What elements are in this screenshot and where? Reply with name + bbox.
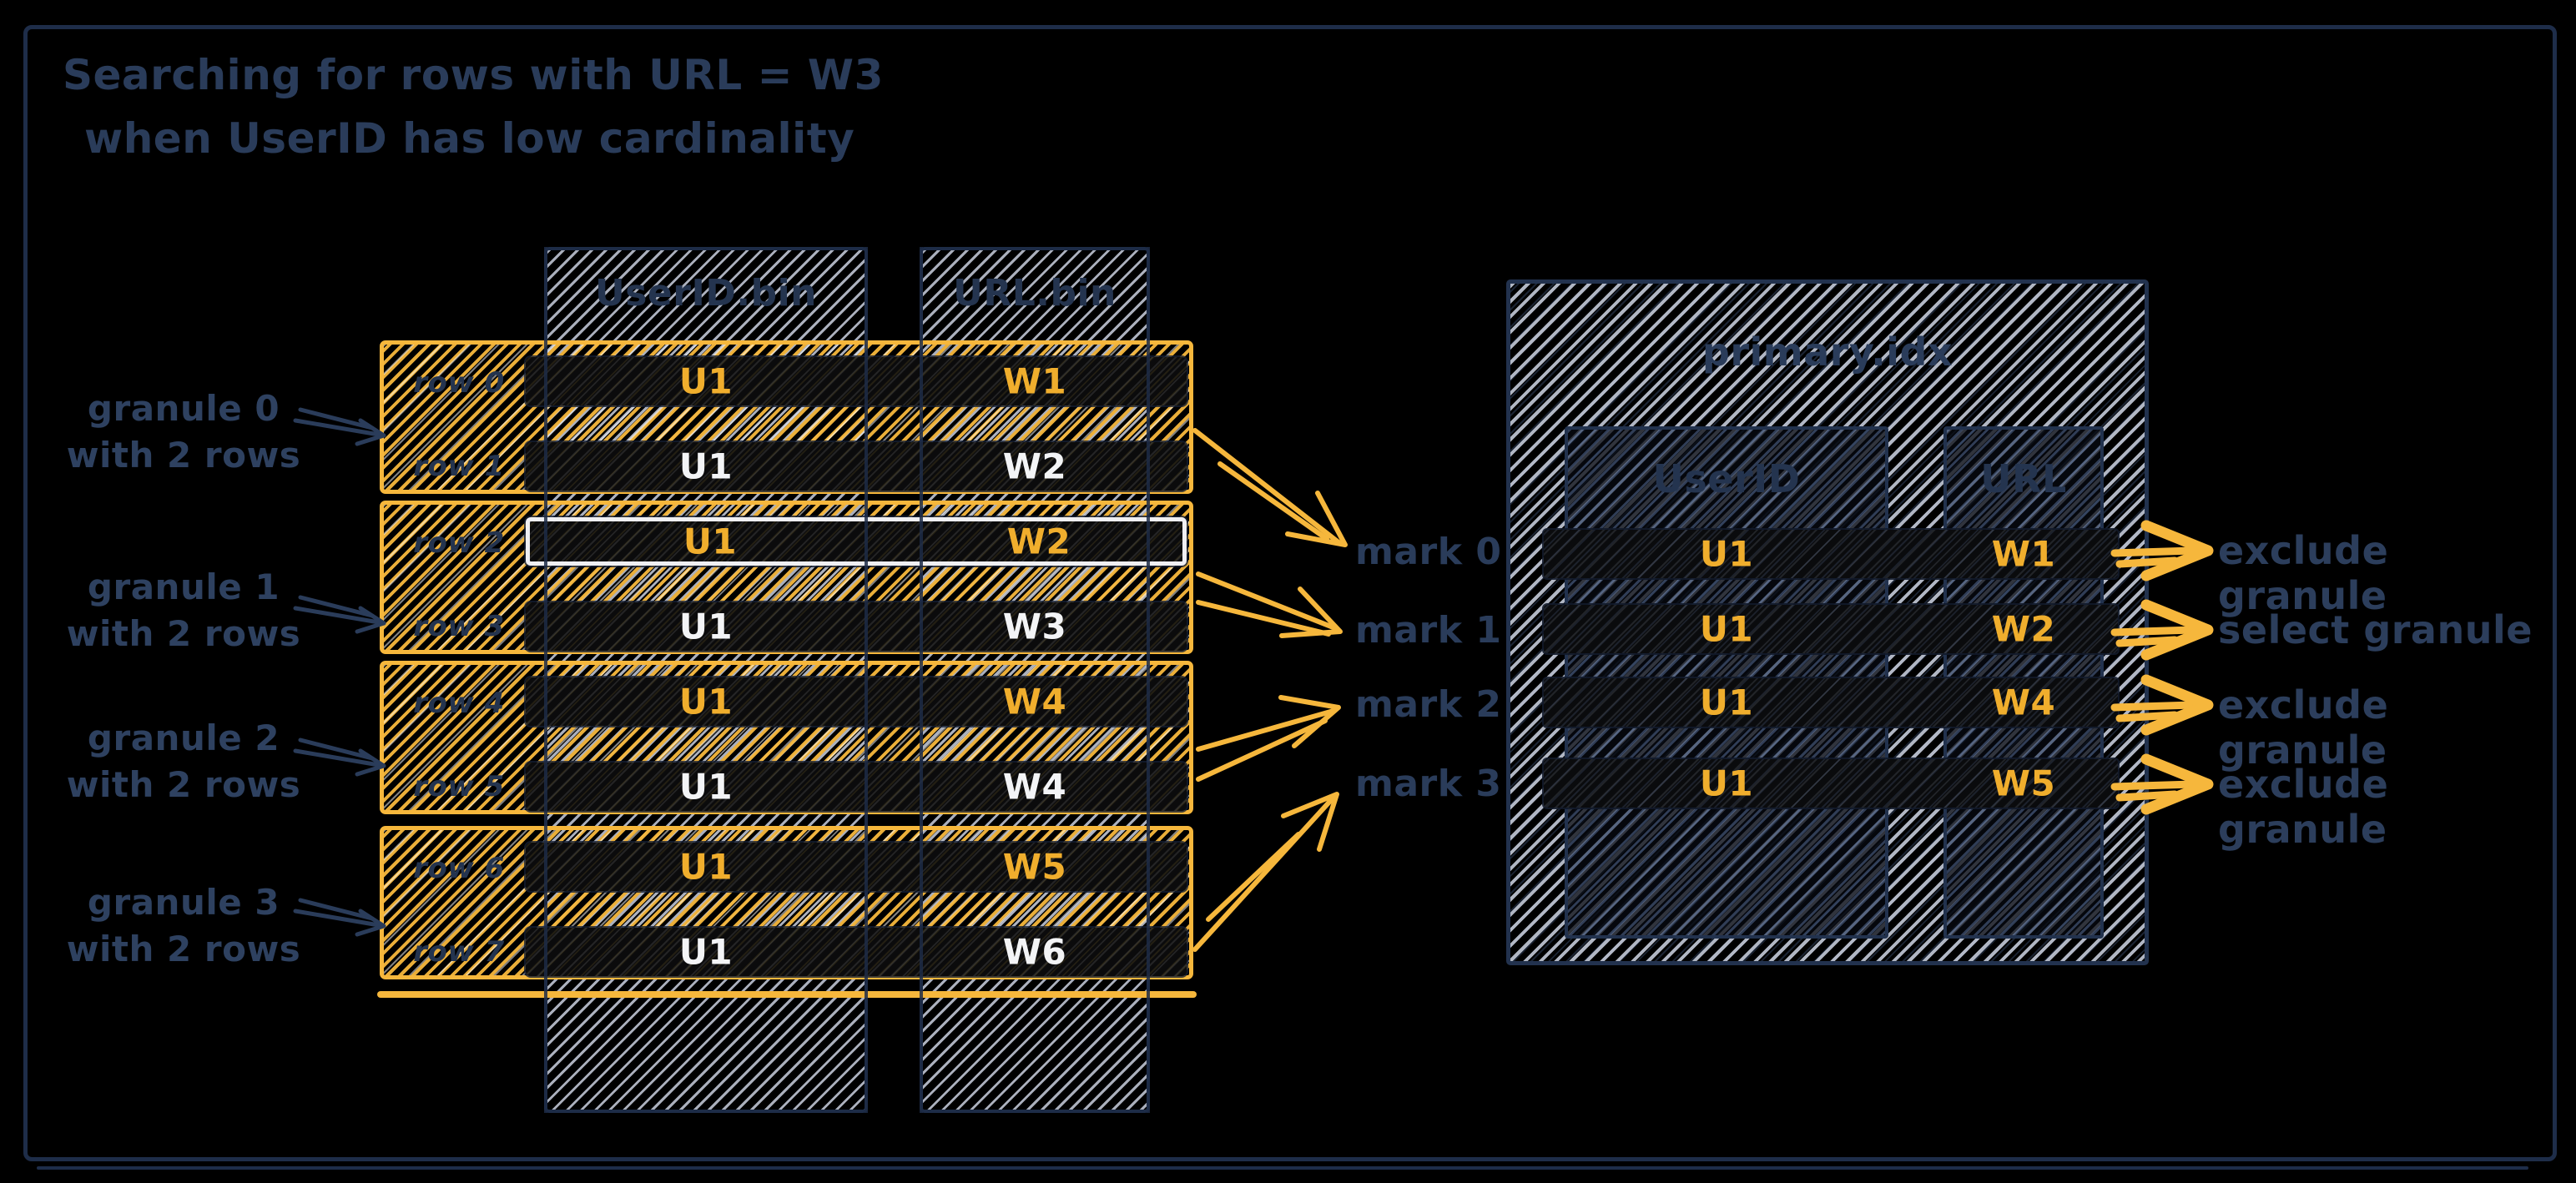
annotation-line: granule 2 xyxy=(42,715,325,762)
cell-url: W3 xyxy=(920,607,1150,647)
annotation-line: with 2 rows xyxy=(42,611,325,657)
cell-url: W1 xyxy=(920,361,1150,402)
table-row-0: U1 W1 xyxy=(526,357,1187,405)
userid-strip-left-border xyxy=(544,247,547,1113)
annotation-line: with 2 rows xyxy=(42,432,325,479)
cell-url: W2 xyxy=(1943,609,2104,650)
primary-idx-title: primary.idx xyxy=(1510,330,2145,375)
userid-bin-header: UserID.bin xyxy=(547,272,865,315)
cell-userid: U1 xyxy=(544,682,868,722)
title-line-2: when UserID has low cardinality xyxy=(63,107,884,170)
cell-userid: U1 xyxy=(544,446,868,487)
outcome-label-3: exclude granule xyxy=(2218,762,2568,852)
cell-userid: U1 xyxy=(1565,609,1888,650)
granule-1-annotation: granule 1 with 2 rows xyxy=(42,564,325,657)
table-row-2-highlighted: U1 W2 xyxy=(526,517,1187,566)
annotation-line: with 2 rows xyxy=(42,926,325,973)
row-label-7: row 7 xyxy=(396,935,522,969)
cell-url: W2 xyxy=(924,521,1154,562)
outcome-label-0: exclude granule xyxy=(2218,528,2568,618)
idx-url-header: URL xyxy=(1947,456,2100,501)
cell-url: W1 xyxy=(1943,534,2104,575)
mark-label-1: mark 1 xyxy=(1355,609,1539,652)
idx-userid-header: UserID xyxy=(1568,456,1885,501)
outcome-label-1: select granule xyxy=(2218,607,2568,652)
idx-row-0: U1 W1 xyxy=(1544,530,2118,578)
cell-userid: U1 xyxy=(1565,534,1888,575)
table-row-3: U1 W3 xyxy=(526,602,1187,651)
idx-row-2: U1 W4 xyxy=(1544,678,2118,727)
primary-idx-table: primary.idx UserID URL U1 W1 U1 W2 U1 W4… xyxy=(1506,279,2149,965)
cell-url: W4 xyxy=(1943,682,2104,723)
row-label-2: row 2 xyxy=(396,526,522,560)
table-row-7: U1 W6 xyxy=(526,928,1187,976)
cell-url: W2 xyxy=(920,446,1150,487)
outcome-label-2: exclude granule xyxy=(2218,682,2568,773)
row-label-3: row 3 xyxy=(396,610,522,643)
cell-url: W4 xyxy=(920,767,1150,808)
outer-frame-bottom-line xyxy=(37,1166,2528,1170)
annotation-line: granule 1 xyxy=(42,564,325,611)
cell-url: W4 xyxy=(920,682,1150,722)
row-label-5: row 5 xyxy=(396,770,522,803)
cell-userid: U1 xyxy=(544,361,868,402)
cell-userid: U1 xyxy=(544,847,868,888)
granule-0-annotation: granule 0 with 2 rows xyxy=(42,385,325,479)
table-row-1: U1 W2 xyxy=(526,442,1187,491)
row-label-4: row 4 xyxy=(396,687,522,720)
cell-userid: U1 xyxy=(544,767,868,808)
cell-userid: U1 xyxy=(1565,763,1888,804)
mark-label-3: mark 3 xyxy=(1355,763,1539,805)
idx-row-1: U1 W2 xyxy=(1544,605,2118,653)
mark-label-0: mark 0 xyxy=(1355,531,1539,573)
userid-strip-right-border xyxy=(865,247,868,1113)
granule-3-annotation: granule 3 with 2 rows xyxy=(42,879,325,973)
mark-label-2: mark 2 xyxy=(1355,683,1539,726)
table-row-6: U1 W5 xyxy=(526,843,1187,891)
cell-url: W5 xyxy=(1943,763,2104,804)
url-strip-right-border xyxy=(1147,247,1150,1113)
url-strip-left-border xyxy=(920,247,923,1113)
cell-userid: U1 xyxy=(1565,682,1888,723)
table-row-4: U1 W4 xyxy=(526,677,1187,726)
annotation-line: with 2 rows xyxy=(42,762,325,808)
diagram-canvas: Searching for rows with URL = W3 when Us… xyxy=(0,0,2576,1183)
title-line-1: Searching for rows with URL = W3 xyxy=(63,43,884,107)
idx-row-3: U1 W5 xyxy=(1544,759,2118,808)
url-bin-header: URL.bin xyxy=(923,272,1147,315)
row-label-6: row 6 xyxy=(396,852,522,885)
granule-2-annotation: granule 2 with 2 rows xyxy=(42,715,325,808)
cell-userid: U1 xyxy=(544,932,868,973)
annotation-line: granule 0 xyxy=(42,385,325,432)
cell-url: W6 xyxy=(920,932,1150,973)
cell-userid: U1 xyxy=(548,521,872,562)
row-label-1: row 1 xyxy=(396,450,522,483)
cell-url: W5 xyxy=(920,847,1150,888)
annotation-line: granule 3 xyxy=(42,879,325,926)
row-label-0: row 0 xyxy=(396,366,522,400)
granule-3-bottom-sketch-line xyxy=(377,991,1197,998)
diagram-title: Searching for rows with URL = W3 when Us… xyxy=(63,43,884,170)
table-row-5: U1 W4 xyxy=(526,763,1187,811)
cell-userid: U1 xyxy=(544,607,868,647)
